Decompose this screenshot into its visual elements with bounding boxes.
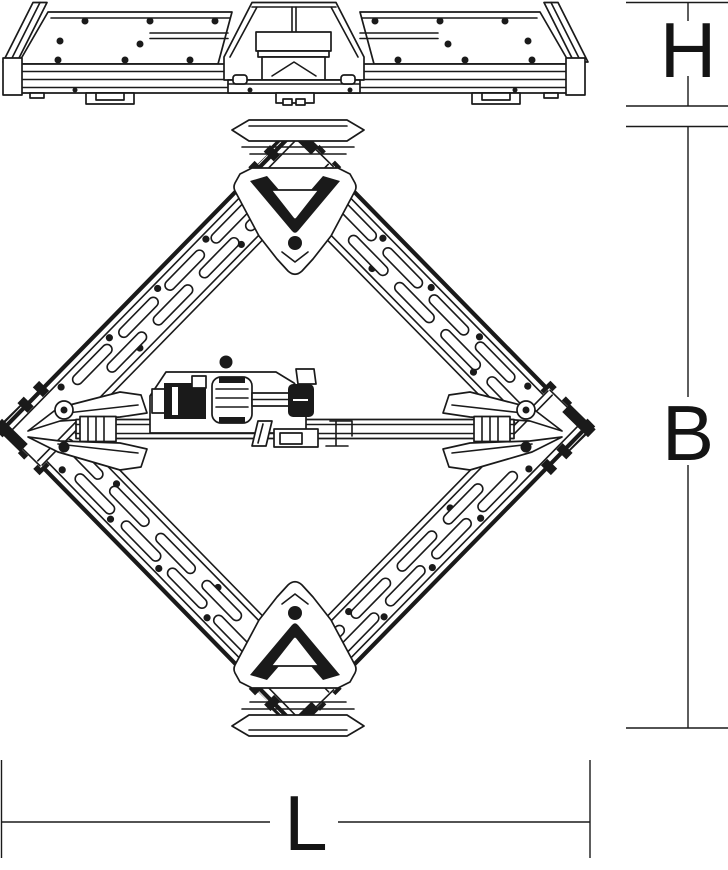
dimension-drawing: H B L bbox=[0, 0, 728, 870]
drawing-canvas: H B L bbox=[0, 0, 728, 870]
center-tower bbox=[224, 3, 364, 94]
dimension-L: L bbox=[2, 760, 591, 867]
left-end-fascia bbox=[3, 58, 22, 95]
feet bbox=[30, 93, 558, 105]
dimension-label-length: L bbox=[284, 779, 327, 867]
plan-view-unfolded-unit bbox=[0, 120, 596, 736]
side-view-folded-unit bbox=[3, 3, 588, 106]
dimension-B: B bbox=[626, 127, 728, 729]
right-end-fascia bbox=[566, 58, 585, 95]
dimension-label-height: H bbox=[660, 6, 716, 94]
dimension-label-depth: B bbox=[662, 389, 714, 477]
dimension-H: H bbox=[626, 3, 728, 107]
